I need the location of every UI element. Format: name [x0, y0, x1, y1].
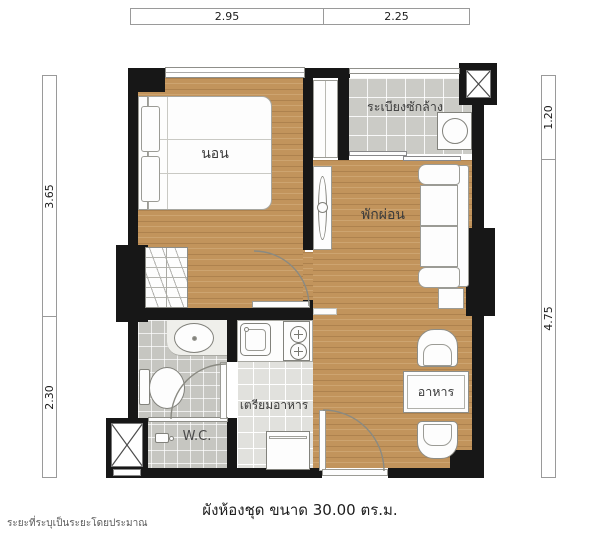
bedroom-door-leaf [252, 301, 310, 308]
pillow [141, 156, 160, 202]
wall-bath-kitchen-lower [227, 418, 237, 468]
dimension-top-2: 2.25 [323, 9, 469, 24]
balcony-sliding-door-panel-2 [403, 156, 461, 161]
entrance-door-leaf [319, 410, 326, 471]
wall-bottom-right [388, 468, 484, 478]
chair-seat [423, 424, 452, 446]
tv-console [313, 166, 332, 250]
living-corner-cabinet [313, 80, 338, 158]
shower-mixer-icon [155, 433, 169, 443]
sink-drain [244, 327, 249, 332]
refrigerator [266, 431, 310, 470]
dimension-right-1: 1.20 [542, 76, 555, 159]
sofa-cushion [420, 226, 458, 267]
wall-right-lower [472, 316, 484, 456]
dimension-right-2: 4.75 [542, 159, 555, 477]
washer-drum [442, 118, 468, 144]
wall-bath-kitchen-upper [227, 320, 237, 362]
floor-plan-canvas: 2.95 2.25 3.65 2.30 1.20 4.75 [0, 0, 600, 540]
chair-seat [423, 344, 452, 366]
fridge-handle [269, 436, 307, 439]
burner-icon [290, 326, 307, 343]
balcony-sliding-door-panel-1 [349, 151, 407, 156]
shaft-top-right [466, 70, 491, 98]
bathroom-door-leaf [220, 362, 227, 419]
plan-footnote: ระยะที่ระบุเป็นระยะโดยประมาณ [7, 516, 148, 531]
living-label: พักผ่อน [343, 208, 423, 223]
top-dimension-bar: 2.95 2.25 [130, 8, 470, 25]
wall-right-upper [472, 98, 484, 228]
wall-right-column [466, 228, 495, 316]
dining-table-top: อาหาร [407, 375, 465, 409]
dining-chair-top [417, 329, 458, 367]
balcony-railing [349, 68, 460, 74]
wardrobe [145, 247, 188, 308]
wall-left-lower [128, 322, 138, 418]
kitchen-sink [240, 323, 271, 356]
wc-label: W.C. [170, 430, 224, 444]
shaft-x-icon [467, 71, 490, 97]
bedroom-label: นอน [180, 147, 250, 162]
dining-label: อาหาร [418, 385, 455, 399]
shaft-bottom-left [111, 423, 143, 467]
sink-basin [245, 329, 266, 351]
living-threshold [313, 308, 337, 315]
toilet-bowl [149, 367, 185, 409]
burner-icon [290, 343, 307, 360]
laundry-balcony-label: ระเบียงซักล้าง [345, 100, 465, 114]
sofa-armrest-bottom [418, 267, 460, 288]
dimension-top-1: 2.95 [131, 9, 323, 24]
shaft-vent [113, 469, 141, 476]
shaft-x-icon [112, 424, 142, 466]
dimension-left-1: 3.65 [43, 76, 56, 316]
tv-icon-center [317, 202, 328, 213]
stove [283, 321, 310, 361]
pillow [141, 106, 160, 152]
side-table [438, 288, 464, 309]
wall-balcony-left [338, 68, 349, 160]
dining-table: อาหาร [403, 371, 469, 413]
dimension-left-2: 2.30 [43, 316, 56, 477]
left-dimension-bar: 3.65 2.30 [42, 75, 57, 478]
shower-screen [148, 417, 228, 422]
wall-left-upper [128, 68, 138, 245]
kitchen-label: เตรียมอาหาร [230, 399, 318, 412]
sink-tap [192, 336, 197, 341]
dining-chair-bottom [417, 421, 458, 459]
washing-machine [437, 112, 472, 150]
bathroom-sink [174, 323, 214, 353]
bedroom-window [165, 67, 305, 78]
right-dimension-bar: 1.20 4.75 [541, 75, 556, 478]
bed-blanket-fold [167, 97, 168, 209]
wall-bedroom-partition [303, 78, 313, 250]
sofa-cushion [420, 185, 458, 226]
sofa [418, 164, 470, 288]
wall-bedroom-south [128, 308, 313, 320]
sofa-armrest-top [418, 164, 460, 185]
entrance-threshold [322, 469, 388, 476]
